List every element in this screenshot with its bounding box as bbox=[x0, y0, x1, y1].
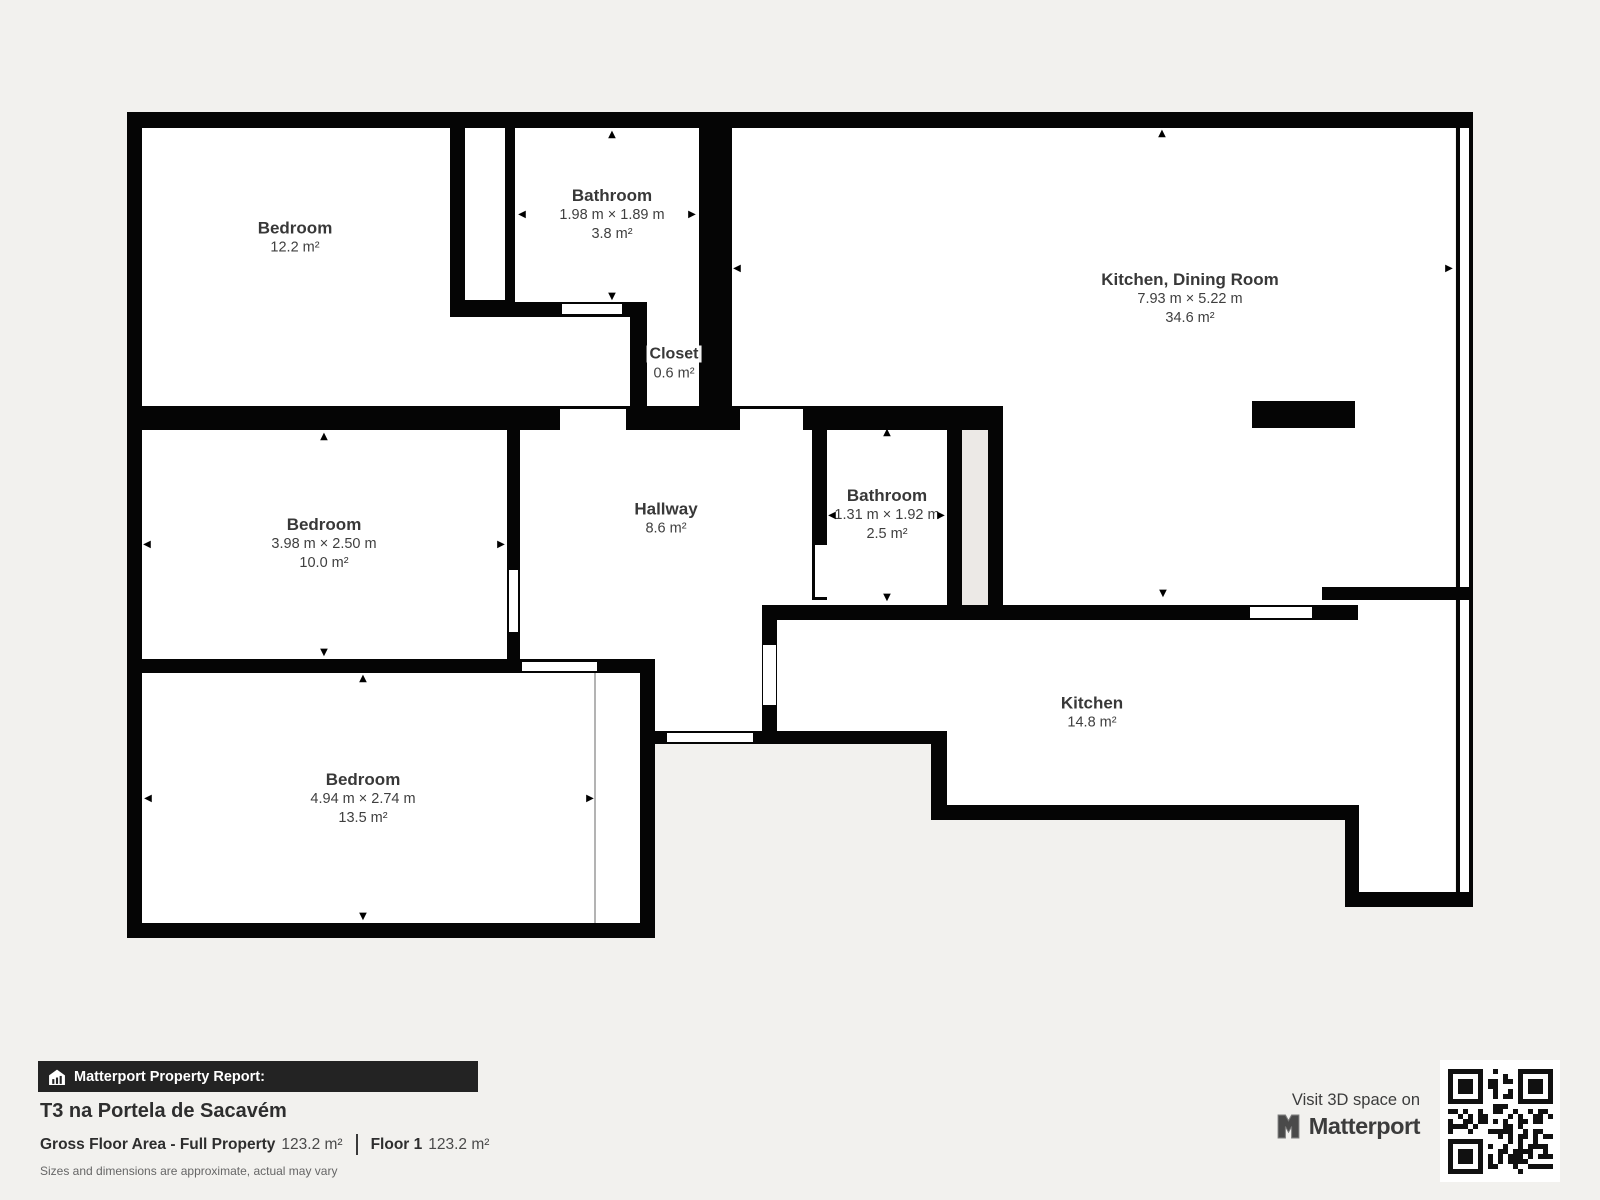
door-opening bbox=[1250, 607, 1312, 618]
room-dims: 3.98 m × 2.50 m bbox=[271, 535, 376, 554]
room-name: Kitchen bbox=[1061, 694, 1123, 714]
room-floor bbox=[777, 620, 947, 744]
wall bbox=[1469, 112, 1473, 892]
house-bar-chart-icon bbox=[48, 1068, 66, 1086]
room-label-bathroom-mid: Bathroom 1.31 m × 1.92 m 2.5 m² bbox=[834, 486, 939, 544]
wall bbox=[127, 112, 142, 938]
room-area: 14.8 m² bbox=[1061, 714, 1123, 733]
room-floor bbox=[142, 128, 699, 406]
matterport-brand: Matterport bbox=[1275, 1113, 1420, 1140]
measure-arrow-down-icon: ▼ bbox=[1159, 589, 1167, 599]
room-area: 8.6 m² bbox=[634, 520, 697, 539]
measure-arrow-up-icon: ▲ bbox=[320, 432, 328, 442]
measure-arrow-right-icon: ▶ bbox=[1445, 264, 1453, 274]
door-opening bbox=[560, 409, 626, 430]
wall bbox=[450, 300, 512, 317]
wall bbox=[699, 112, 732, 430]
wardrobe-divider-line bbox=[594, 673, 596, 923]
room-dims: 7.93 m × 5.22 m bbox=[1101, 290, 1279, 309]
balcony-strip bbox=[1460, 128, 1469, 587]
banner-label: Matterport Property Report: bbox=[74, 1069, 265, 1085]
measure-arrow-left-icon: ◀ bbox=[144, 794, 152, 804]
gfa-label: Gross Floor Area - Full Property bbox=[40, 1136, 275, 1154]
visit-3d-label: Visit 3D space on bbox=[1292, 1091, 1420, 1110]
entrance-door-opening bbox=[667, 733, 753, 742]
room-area: 0.6 m² bbox=[647, 365, 702, 384]
wall bbox=[931, 805, 1359, 820]
measure-arrow-right-icon: ▶ bbox=[688, 210, 696, 220]
kitchen-counter bbox=[1252, 401, 1355, 428]
floor-plan-report: Bedroom 12.2 m² Bathroom 1.98 m × 1.89 m… bbox=[0, 0, 1600, 1200]
wall bbox=[127, 112, 1473, 128]
measure-arrow-up-icon: ▲ bbox=[1158, 129, 1166, 139]
room-name: Kitchen, Dining Room bbox=[1101, 270, 1279, 290]
room-floor bbox=[1345, 805, 1455, 892]
duct-shaft bbox=[962, 426, 988, 605]
measure-arrow-left-icon: ◀ bbox=[828, 511, 836, 521]
gfa-value: 123.2 m² bbox=[281, 1136, 342, 1154]
door-opening bbox=[522, 662, 597, 671]
room-name: Bathroom bbox=[559, 186, 664, 206]
measure-arrow-right-icon: ▶ bbox=[497, 540, 505, 550]
wall bbox=[1359, 892, 1473, 907]
measure-arrow-right-icon: ▶ bbox=[937, 511, 945, 521]
measure-arrow-right-icon: ▶ bbox=[586, 794, 594, 804]
room-floor bbox=[931, 600, 1455, 820]
wall bbox=[127, 923, 655, 938]
room-dims: 1.98 m × 1.89 m bbox=[559, 206, 664, 225]
room-label-bedroom-mid: Bedroom 3.98 m × 2.50 m 10.0 m² bbox=[271, 515, 376, 573]
measure-arrow-down-icon: ▼ bbox=[359, 912, 367, 922]
room-label-bathroom-top: Bathroom 1.98 m × 1.89 m 3.8 m² bbox=[559, 186, 664, 244]
wall bbox=[640, 659, 655, 938]
qr-code bbox=[1440, 1060, 1560, 1182]
measure-arrow-down-icon: ▼ bbox=[320, 648, 328, 658]
door-opening bbox=[740, 409, 803, 430]
measure-arrow-up-icon: ▲ bbox=[883, 428, 891, 438]
wall bbox=[1345, 820, 1359, 907]
door-opening bbox=[562, 304, 622, 314]
room-label-kitchen-dining: Kitchen, Dining Room 7.93 m × 5.22 m 34.… bbox=[1101, 270, 1279, 328]
room-name: Bedroom bbox=[258, 219, 333, 239]
room-area: 13.5 m² bbox=[310, 809, 415, 828]
room-label-bedroom-bottom: Bedroom 4.94 m × 2.74 m 13.5 m² bbox=[310, 770, 415, 828]
wall bbox=[988, 406, 1003, 605]
room-label-closet: Closet 0.6 m² bbox=[647, 345, 702, 384]
door-opening bbox=[509, 570, 518, 632]
measure-arrow-up-icon: ▲ bbox=[359, 674, 367, 684]
room-dims: 4.94 m × 2.74 m bbox=[310, 790, 415, 809]
disclaimer-text: Sizes and dimensions are approximate, ac… bbox=[40, 1164, 337, 1178]
divider bbox=[356, 1134, 358, 1155]
measure-arrow-left-icon: ◀ bbox=[143, 540, 151, 550]
measure-arrow-left-icon: ◀ bbox=[518, 210, 526, 220]
room-area: 10.0 m² bbox=[271, 554, 376, 573]
room-area: 12.2 m² bbox=[258, 239, 333, 258]
room-name: Bathroom bbox=[834, 486, 939, 506]
floor-value: 123.2 m² bbox=[428, 1136, 489, 1154]
measure-arrow-down-icon: ▼ bbox=[608, 292, 616, 302]
room-name: Closet bbox=[647, 345, 702, 365]
wall bbox=[947, 430, 962, 605]
door-opening bbox=[763, 645, 776, 705]
room-label-bedroom-tl: Bedroom 12.2 m² bbox=[258, 219, 333, 258]
report-banner: Matterport Property Report: bbox=[38, 1061, 478, 1092]
matterport-m-icon bbox=[1275, 1113, 1302, 1140]
floor-label: Floor 1 bbox=[371, 1136, 423, 1154]
room-label-hallway: Hallway 8.6 m² bbox=[634, 500, 697, 539]
room-area: 2.5 m² bbox=[834, 525, 939, 544]
measure-arrow-down-icon: ▼ bbox=[883, 593, 891, 603]
area-stats: Gross Floor Area - Full Property 123.2 m… bbox=[40, 1134, 489, 1155]
wall bbox=[450, 112, 465, 317]
room-label-kitchen: Kitchen 14.8 m² bbox=[1061, 694, 1123, 733]
property-title: T3 na Portela de Sacavém bbox=[40, 1100, 287, 1123]
room-area: 34.6 m² bbox=[1101, 309, 1279, 328]
wall bbox=[630, 317, 647, 406]
room-name: Bedroom bbox=[310, 770, 415, 790]
door-opening bbox=[815, 545, 827, 597]
room-name: Bedroom bbox=[271, 515, 376, 535]
brand-wordmark: Matterport bbox=[1309, 1113, 1420, 1140]
wall bbox=[505, 112, 515, 302]
measure-arrow-up-icon: ▲ bbox=[608, 130, 616, 140]
room-dims: 1.31 m × 1.92 m bbox=[834, 506, 939, 525]
room-floor bbox=[732, 128, 1455, 620]
window-line bbox=[1456, 116, 1460, 892]
wall bbox=[1322, 587, 1473, 600]
balcony-strip bbox=[1460, 600, 1469, 892]
room-area: 3.8 m² bbox=[559, 225, 664, 244]
room-name: Hallway bbox=[634, 500, 697, 520]
measure-arrow-left-icon: ◀ bbox=[733, 264, 741, 274]
